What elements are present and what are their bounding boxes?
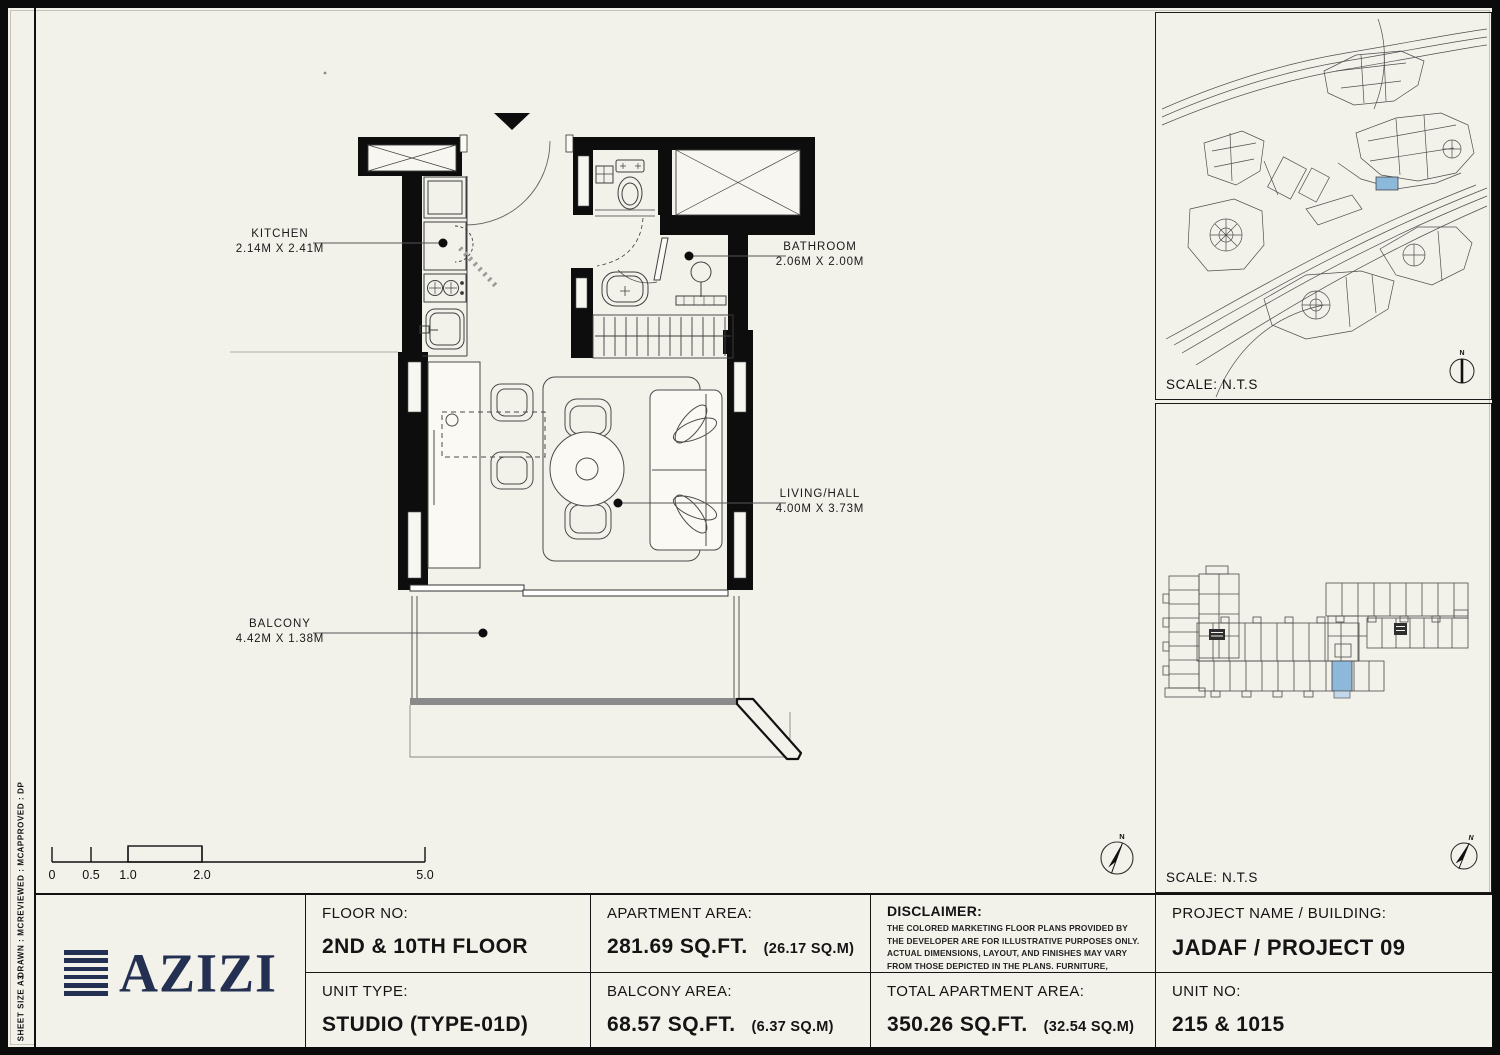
balcony-area-cell: BALCONY AREA: 68.57 SQ.FT.(6.37 SQ.M) — [590, 972, 870, 1049]
wardrobe — [593, 315, 733, 358]
site-plot-clusters — [1188, 51, 1474, 339]
unit-no-value: 215 & 1015 — [1172, 1013, 1476, 1037]
site-map-panel: N SCALE: N.T.S — [1155, 12, 1492, 400]
scale-tick-20: 2.0 — [193, 868, 210, 882]
project-name-value: JADAF / PROJECT 09 — [1172, 935, 1476, 961]
print-artifact-dot — [324, 72, 327, 75]
site-north-label: N — [1459, 350, 1464, 357]
balcony-area-metric: (6.37 SQ.M) — [752, 1019, 834, 1035]
floor-plan-drawing: 0 0.5 1.0 2.0 5.0 N — [36, 8, 1150, 892]
balcony-area-value: 68.57 SQ.FT.(6.37 SQ.M) — [607, 1013, 854, 1037]
floor-plan-area: 0 0.5 1.0 2.0 5.0 N KITCHEN 2.14M X 2 — [36, 8, 1150, 892]
azizi-bars-icon — [64, 950, 108, 996]
apartment-area-cell: APARTMENT AREA: 281.69 SQ.FT.(26.17 SQ.M… — [590, 895, 870, 972]
floor-no-label: FLOOR NO: — [322, 905, 574, 922]
entrance-door — [460, 135, 573, 225]
entrance-arrow-icon — [494, 113, 530, 130]
bathroom-label: BATHROOM 2.06M X 2.00M — [752, 240, 888, 270]
key-north-compass-icon: N — [1451, 835, 1477, 869]
floorplan-sheet: APPROVED : DP REVIEWED : MC DRAWN : MC S… — [0, 0, 1500, 1055]
balcony-structure — [410, 585, 801, 759]
key-north-label: N — [1468, 835, 1474, 842]
scale-tick-05: 0.5 — [82, 868, 99, 882]
scale-bar: 0 0.5 1.0 2.0 5.0 — [49, 846, 434, 882]
site-scale-label: SCALE: N.T.S — [1166, 377, 1258, 392]
approved-label: APPROVED : DP — [17, 782, 26, 853]
kitchen-label: KITCHEN 2.14M X 2.41M — [212, 227, 348, 257]
sheet-size-label: SHEET SIZE A3 — [17, 975, 26, 1042]
living-hall-label: LIVING/HALL 4.00M X 3.73M — [752, 487, 888, 517]
azizi-wordmark: AZIZI — [119, 945, 277, 1000]
total-area-label: TOTAL APARTMENT AREA: — [887, 983, 1139, 1000]
scale-tick-10: 1.0 — [119, 868, 136, 882]
unit-type-value: STUDIO (TYPE-01D) — [322, 1013, 574, 1037]
site-north-compass-icon: N — [1450, 350, 1474, 383]
drawn-label: DRAWN : MC — [17, 922, 26, 978]
kitchen-fixtures — [420, 176, 497, 356]
unit-no-cell: UNIT NO: 215 & 1015 — [1155, 972, 1492, 1049]
living-room-furniture — [428, 362, 722, 568]
balcony-label: BALCONY 4.42M X 1.38M — [212, 617, 348, 647]
disclaimer-text: THE COLORED MARKETING FLOOR PLANS PROVID… — [887, 922, 1141, 972]
key-plan-highlighted-unit — [1332, 661, 1352, 698]
reviewed-label: REVIEWED : MC — [17, 852, 26, 922]
site-highlighted-plot — [1376, 177, 1398, 190]
plan-north-compass-icon: N — [1101, 832, 1133, 874]
balcony-area-label: BALCONY AREA: — [607, 983, 854, 1000]
project-name-label: PROJECT NAME / BUILDING: — [1172, 905, 1476, 922]
wc-fixtures — [595, 160, 655, 266]
disclaimer-cell: DISCLAIMER: THE COLORED MARKETING FLOOR … — [870, 895, 1155, 972]
unit-no-label: UNIT NO: — [1172, 983, 1476, 1000]
apartment-area-value: 281.69 SQ.FT.(26.17 SQ.M) — [607, 935, 854, 959]
apartment-area-label: APARTMENT AREA: — [607, 905, 854, 922]
building-footprint — [1163, 566, 1468, 697]
developer-logo: AZIZI — [36, 895, 305, 1049]
unit-type-label: UNIT TYPE: — [322, 983, 574, 1000]
sheet-side-strip: APPROVED : DP REVIEWED : MC DRAWN : MC S… — [8, 8, 36, 1047]
total-area-value: 350.26 SQ.FT.(32.54 SQ.M) — [887, 1013, 1139, 1037]
floor-no-cell: FLOOR NO: 2ND & 10TH FLOOR — [305, 895, 590, 972]
project-name-cell: PROJECT NAME / BUILDING: JADAF / PROJECT… — [1155, 895, 1492, 972]
apartment-area-metric: (26.17 SQ.M) — [764, 941, 855, 957]
key-plan-drawing: N — [1156, 404, 1490, 891]
unit-type-cell: UNIT TYPE: STUDIO (TYPE-01D) — [305, 972, 590, 1049]
floor-no-value: 2ND & 10TH FLOOR — [322, 935, 574, 959]
disclaimer-label: DISCLAIMER: — [887, 903, 1141, 919]
bathroom-fixtures — [602, 238, 726, 306]
building-key-plan-panel: N SCALE: N.T.S — [1155, 403, 1492, 893]
scale-tick-50: 5.0 — [416, 868, 433, 882]
site-map-drawing: N — [1156, 13, 1490, 398]
scale-tick-0: 0 — [49, 868, 56, 882]
total-area-cell: TOTAL APARTMENT AREA: 350.26 SQ.FT.(32.5… — [870, 972, 1155, 1049]
key-scale-label: SCALE: N.T.S — [1166, 870, 1258, 885]
title-block: AZIZI FLOOR NO: 2ND & 10TH FLOOR APARTME… — [36, 893, 1492, 1047]
plan-north-label: N — [1119, 832, 1124, 841]
total-area-metric: (32.54 SQ.M) — [1044, 1019, 1135, 1035]
